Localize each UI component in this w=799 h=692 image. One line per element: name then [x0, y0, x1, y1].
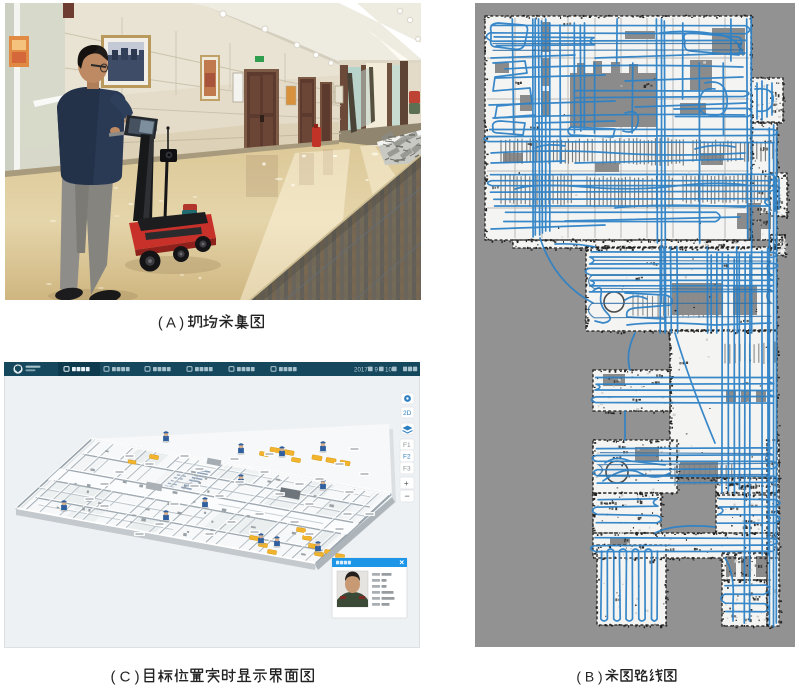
svg-text:( A ): ( A ) — [158, 316, 184, 332]
svg-text:( C ): ( C ) — [111, 669, 140, 686]
svg-text:( B ): ( B ) — [576, 668, 602, 684]
